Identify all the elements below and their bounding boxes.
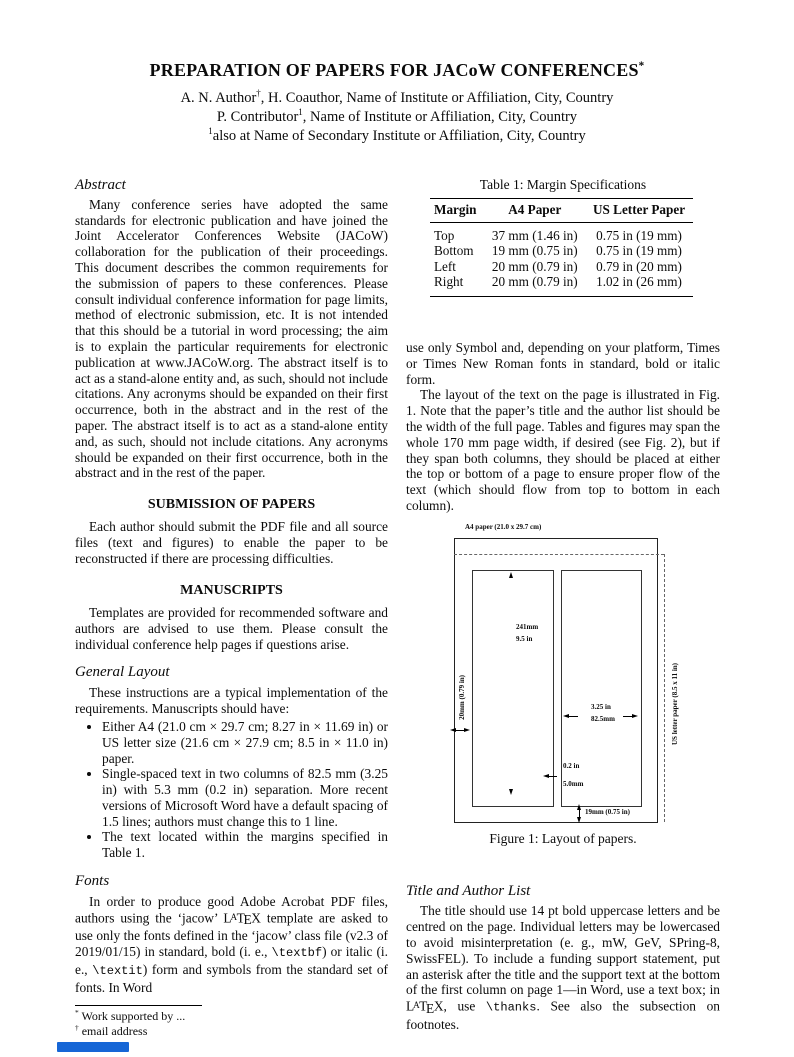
arrow-up-icon <box>577 804 581 810</box>
arrow-stem <box>549 776 557 777</box>
cell-usletter: 0.75 in (19 mm) <box>585 222 693 243</box>
cell-margin: Bottom <box>430 243 485 259</box>
manuscripts-text: Templates are provided for recommended s… <box>75 605 388 652</box>
arrow-stem <box>569 716 578 717</box>
submission-heading: SUBMISSION OF PAPERS <box>75 497 388 513</box>
paper-title: PREPARATION OF PAPERS FOR JACoW CONFEREN… <box>0 60 794 81</box>
column-width-in: 3.25 in <box>591 701 615 713</box>
table-header-row: Margin A4 Paper US Letter Paper <box>430 198 693 222</box>
table-row: Left 20 mm (0.79 in) 0.79 in (20 mm) <box>430 259 693 275</box>
footnote-funding: * Work supported by ... <box>75 1009 388 1024</box>
table-row: Right 20 mm (0.79 in) 1.02 in (26 mm) <box>430 274 693 296</box>
cell-usletter: 1.02 in (26 mm) <box>585 274 693 296</box>
arrow-down-icon <box>509 789 513 795</box>
column-height-mm: 241mm <box>516 621 538 633</box>
arrow-stem <box>623 716 632 717</box>
layout-text: The layout of the text on the page is il… <box>406 387 720 513</box>
us-letter-label: US letter paper (8.5 x 11 in) <box>668 663 684 745</box>
paper-page: PREPARATION OF PAPERS FOR JACoW CONFEREN… <box>0 0 794 1057</box>
arrow-stem <box>455 730 465 731</box>
table-row: Top 37 mm (1.46 in) 0.75 in (19 mm) <box>430 222 693 243</box>
column-header: Margin <box>430 198 485 222</box>
author-line-2: P. Contributor1, Name of Institute or Af… <box>0 108 794 127</box>
requirements-list: Either A4 (21.0 cm × 29.7 cm; 8.27 in × … <box>75 719 388 861</box>
footnote-email: † email address <box>75 1024 388 1039</box>
status-indicator-bar <box>57 1042 129 1052</box>
fonts-heading: Fonts <box>75 874 388 890</box>
list-item: The text located within the margins spec… <box>102 829 388 861</box>
us-letter-outline-top <box>454 554 664 555</box>
general-layout-intro: These instructions are a typical impleme… <box>75 685 388 717</box>
bottom-margin-label: 19mm (0.75 in) <box>585 808 630 817</box>
cell-margin: Top <box>430 222 485 243</box>
cell-a4: 20 mm (0.79 in) <box>485 274 586 296</box>
column-header: A4 Paper <box>485 198 586 222</box>
right-column: Table 1: Margin Specifications Margin A4… <box>406 170 720 1038</box>
arrow-up-icon <box>509 572 513 578</box>
margin-specifications-table: Margin A4 Paper US Letter Paper Top 37 m… <box>430 198 693 297</box>
general-layout-heading: General Layout <box>75 665 388 681</box>
fonts-text: In order to produce good Adobe Acrobat P… <box>75 894 388 995</box>
arrow-right-icon <box>632 714 638 718</box>
left-column: Abstract Many conference series have ado… <box>75 170 388 1038</box>
us-letter-outline-right <box>664 554 665 822</box>
table-caption: Table 1: Margin Specifications <box>406 177 720 193</box>
column-header: US Letter Paper <box>585 198 693 222</box>
author-list: A. N. Author†, H. Coauthor, Name of Inst… <box>0 89 794 146</box>
cell-a4: 20 mm (0.79 in) <box>485 259 586 275</box>
gap-in: 0.2 in <box>563 762 583 771</box>
column-width-mm: 82.5mm <box>591 713 615 725</box>
column-gap-label: 0.2 in 5.0mm <box>563 762 583 789</box>
column-width-label: 3.25 in 82.5mm <box>591 701 615 725</box>
column-height-label: 241mm 9.5 in <box>516 621 538 645</box>
abstract-text: Many conference series have adopted the … <box>75 197 388 481</box>
a4-paper-label: A4 paper (21.0 x 29.7 cm) <box>465 523 541 532</box>
figure-caption: Figure 1: Layout of papers. <box>406 831 720 847</box>
table-row: Bottom 19 mm (0.75 in) 0.75 in (19 mm) <box>430 243 693 259</box>
cell-usletter: 0.75 in (19 mm) <box>585 243 693 259</box>
left-margin-label: 20mm (0.79 in) <box>455 675 471 720</box>
title-author-text: The title should use 14 pt bold uppercas… <box>406 903 720 1032</box>
list-item: Single-spaced text in two columns of 82.… <box>102 766 388 829</box>
abstract-heading: Abstract <box>75 178 388 194</box>
cell-margin: Right <box>430 274 485 296</box>
left-text-column-box <box>472 570 554 807</box>
footnote-rule <box>75 1005 202 1006</box>
figure-layout-diagram: A4 paper (21.0 x 29.7 cm) 241mm 9.5 in 2… <box>406 525 720 828</box>
author-line-3: 1also at Name of Secondary Institute or … <box>0 127 794 146</box>
fonts-continuation-text: use only Symbol and, depending on your p… <box>406 340 720 387</box>
list-item: Either A4 (21.0 cm × 29.7 cm; 8.27 in × … <box>102 719 388 766</box>
gap-mm: 5.0mm <box>563 780 583 789</box>
cell-a4: 37 mm (1.46 in) <box>485 222 586 243</box>
title-author-heading: Title and Author List <box>406 884 720 900</box>
arrow-down-icon <box>577 817 581 823</box>
column-height-in: 9.5 in <box>516 633 538 645</box>
cell-a4: 19 mm (0.75 in) <box>485 243 586 259</box>
manuscripts-heading: MANUSCRIPTS <box>75 583 388 599</box>
cell-margin: Left <box>430 259 485 275</box>
author-line-1: A. N. Author†, H. Coauthor, Name of Inst… <box>0 89 794 108</box>
two-column-body: Abstract Many conference series have ado… <box>75 170 720 1038</box>
submission-text: Each author should submit the PDF file a… <box>75 519 388 566</box>
cell-usletter: 0.79 in (20 mm) <box>585 259 693 275</box>
